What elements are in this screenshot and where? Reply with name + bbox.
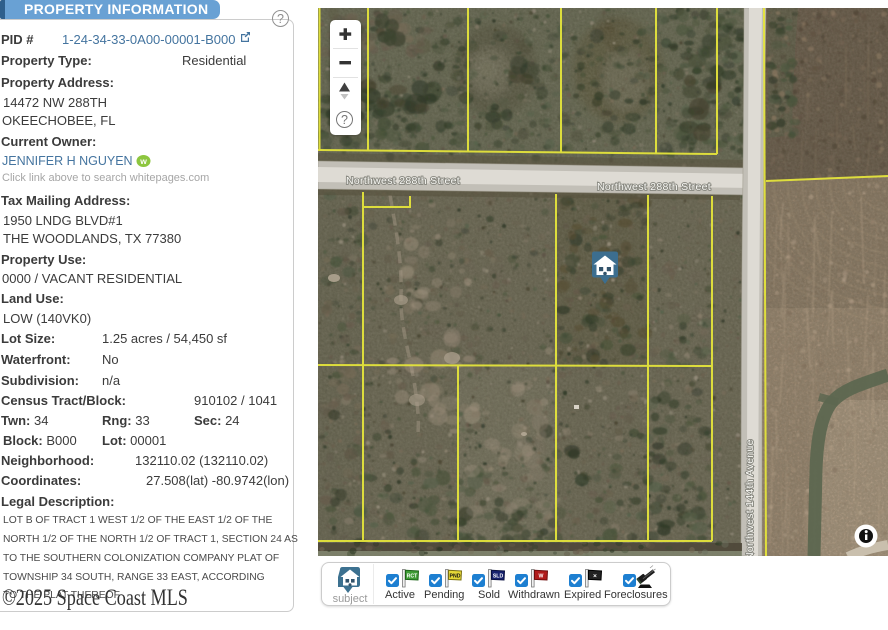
svg-text:Northwest 288th Street: Northwest 288th Street — [346, 175, 460, 187]
svg-text:Northwest 144th Avenue: Northwest 144th Avenue — [744, 439, 756, 556]
svg-text:w: w — [139, 156, 147, 166]
svg-text:W: W — [539, 573, 544, 579]
svg-text:Northwest 288th Street: Northwest 288th Street — [597, 181, 711, 193]
svg-text:RCT: RCT — [407, 573, 418, 579]
svg-text:✕: ✕ — [593, 573, 597, 579]
svg-text:PND: PND — [450, 573, 461, 579]
svg-text:SLD: SLD — [493, 573, 504, 579]
